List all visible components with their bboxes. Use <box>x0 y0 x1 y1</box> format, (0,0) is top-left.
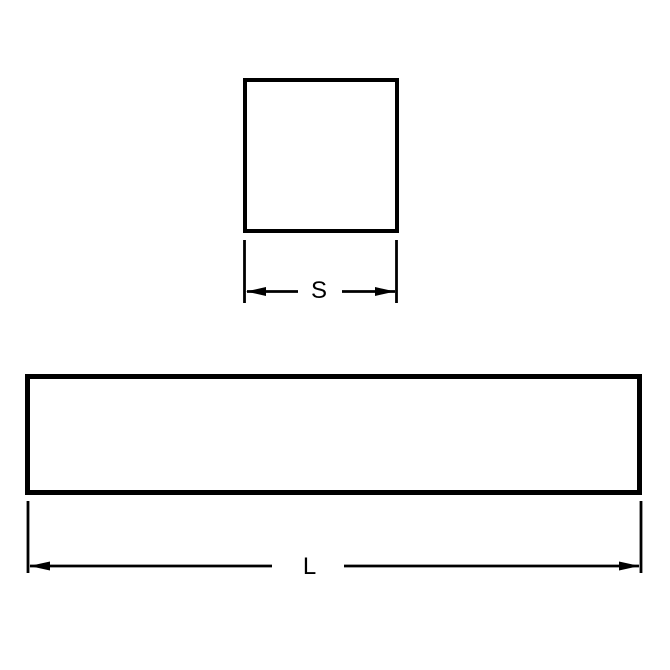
l-dimension-label: L <box>303 553 316 580</box>
s-dimension-label: S <box>311 277 327 304</box>
diagram-background <box>0 0 670 670</box>
diagram-svg: S L <box>0 0 670 670</box>
keysteel-dimension-diagram: S L <box>0 0 670 670</box>
